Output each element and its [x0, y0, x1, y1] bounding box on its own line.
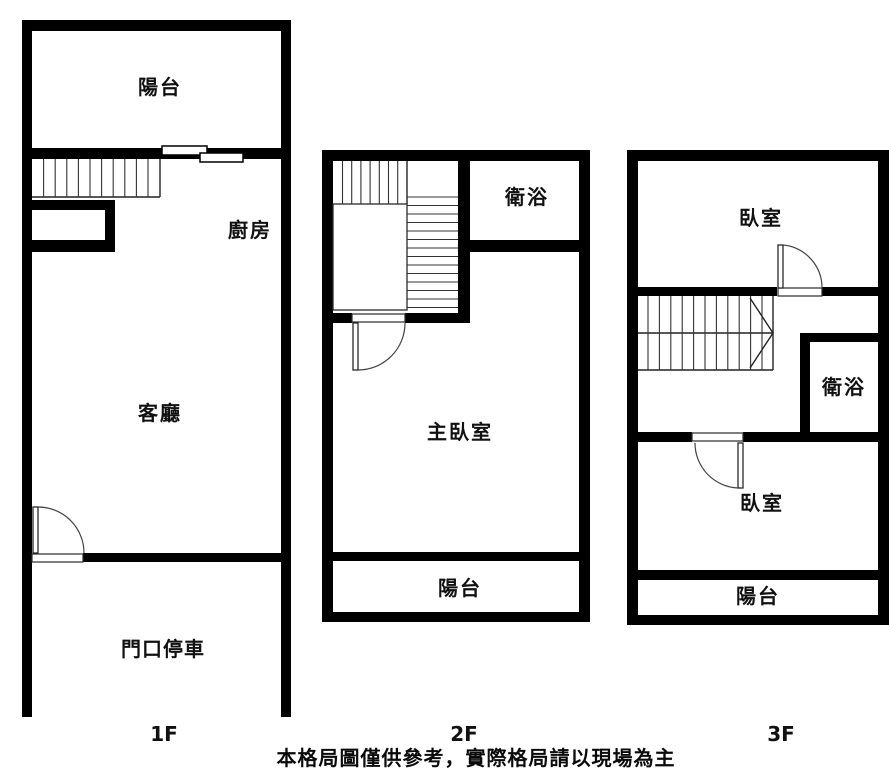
2f-stair-door	[352, 314, 405, 370]
1f-balcony-label: 陽台	[138, 75, 182, 99]
1f-entry-parking-label: 門口停車	[121, 637, 205, 661]
2f-bathroom-label: 衛浴	[504, 185, 549, 209]
3f-bedroom-lower-label: 臥室	[740, 491, 784, 515]
1f-living-room-label: 客廳	[137, 401, 182, 425]
2f-balcony-label: 陽台	[438, 576, 482, 600]
3f-staircase	[638, 296, 773, 370]
3f-bedroom-upper-label: 臥室	[739, 206, 783, 230]
disclaimer-caption: 本格局圖僅供參考，實際格局請以現場為主	[277, 746, 676, 770]
3f-bedroom-lower-wall	[638, 432, 878, 442]
floorplan-page: 陽台 廚房 客廳 門口停車 1F	[0, 0, 889, 772]
3f-floor-label: 3F	[767, 722, 795, 746]
3f-balcony-wall	[638, 570, 878, 580]
1f-kitchen-label: 廚房	[228, 218, 272, 242]
floor-2f-plan: 衛浴 主臥室 陽台 2F	[322, 150, 590, 746]
1f-outer-walls	[22, 20, 291, 717]
2f-floor-label: 2F	[450, 722, 478, 746]
2f-staircase	[333, 161, 458, 310]
2f-balcony-wall	[333, 552, 579, 561]
2f-master-bedroom-label: 主臥室	[427, 420, 493, 444]
3f-bedroom-upper-door	[778, 245, 822, 296]
1f-floor-label: 1F	[150, 722, 178, 746]
3f-balcony-label: 陽台	[736, 584, 780, 608]
1f-staircase	[32, 159, 160, 197]
floor-1f-plan: 陽台 廚房 客廳 門口停車 1F	[22, 20, 291, 746]
floor-3f-plan: 臥室 衛浴 臥室 陽台 3F	[627, 150, 889, 746]
floorplan-canvas: 陽台 廚房 客廳 門口停車 1F	[0, 0, 889, 772]
1f-entry-door	[32, 507, 84, 562]
1f-under-stair-storage	[22, 200, 115, 252]
3f-bathroom-label: 衛浴	[821, 375, 866, 399]
3f-bedroom-lower-door	[692, 433, 743, 488]
1f-living-parking-wall	[83, 553, 281, 562]
3f-bedroom-upper-wall	[638, 287, 878, 296]
